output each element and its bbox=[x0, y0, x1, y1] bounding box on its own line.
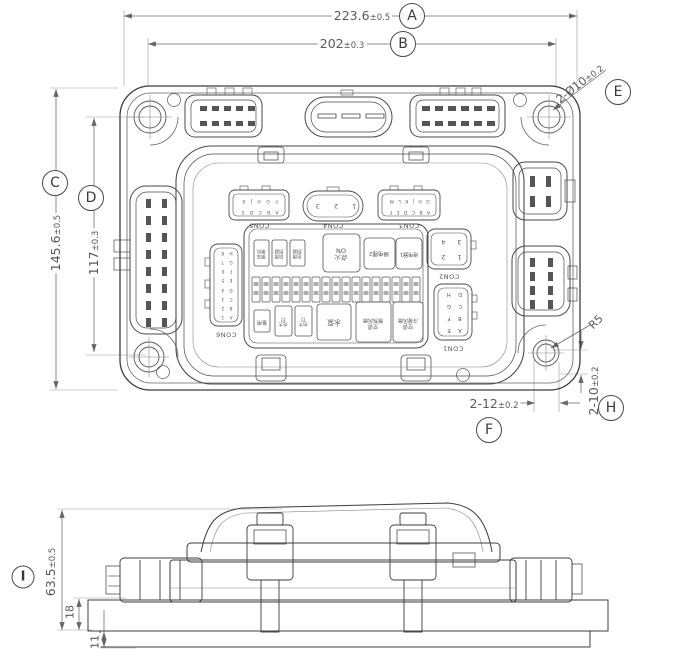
balloon-F: F bbox=[476, 417, 502, 443]
small-relay-4-label: 左大灯 bbox=[279, 316, 288, 326]
top-connector-center bbox=[305, 97, 392, 137]
right-connector-8pin bbox=[512, 246, 577, 316]
con4-pins: 1 2 3 bbox=[309, 197, 357, 215]
dim-D-text: 117±0.3 bbox=[88, 229, 101, 278]
dim-C-text: 145.6±0.5 bbox=[50, 213, 63, 273]
top-connector-left bbox=[185, 95, 262, 137]
small-relay-1-label: 倒车喇叭 bbox=[257, 248, 266, 258]
small-relay-3-label: 后雨刮器 bbox=[293, 248, 302, 258]
con3-pins: A B C D E FG H J K L M bbox=[382, 194, 436, 216]
balloon-D: D bbox=[78, 185, 104, 211]
balloon-I: I bbox=[12, 566, 35, 589]
cover-latches bbox=[256, 147, 431, 381]
dim-18-text: 18 bbox=[65, 603, 76, 621]
side-left-connector bbox=[106, 558, 202, 602]
dim-B-text: 202±0.3 bbox=[318, 38, 367, 51]
con1-pins: A EB F C GD H bbox=[438, 288, 468, 336]
small-relay-5-label: 右大灯 bbox=[299, 316, 308, 326]
con2-pins: 1 23 4 bbox=[431, 234, 467, 264]
relay2-label: 继电器2 bbox=[369, 250, 389, 256]
con1-label: CON1 bbox=[443, 344, 464, 351]
balloon-B: B bbox=[390, 31, 416, 57]
engineering-drawing: 223.6±0.5 A 202±0.3 B C 145.6±0.5 D 117±… bbox=[0, 0, 700, 658]
small-relay-2-label: 前雨刮器 bbox=[275, 248, 284, 258]
dim-I-text: 63.5±0.5 bbox=[45, 546, 58, 598]
dim-F-text: 2-12±0.2 bbox=[467, 398, 520, 411]
side-clips bbox=[247, 513, 436, 632]
con3-label: CON3 bbox=[399, 221, 420, 228]
con6-label: CON6 bbox=[216, 330, 237, 337]
edge-tabs bbox=[207, 88, 481, 95]
relay1-label: 继电器1 bbox=[400, 250, 418, 256]
balloon-C: C bbox=[42, 170, 68, 196]
left-connector bbox=[114, 186, 182, 334]
con5-pins: A B C D EF G H J K bbox=[233, 194, 285, 216]
balloon-H: H bbox=[598, 395, 624, 421]
casing-outline bbox=[120, 86, 580, 390]
ac-fan-2-label: 空调冷凝风扇 bbox=[398, 316, 418, 328]
balloon-A: A bbox=[399, 3, 425, 29]
dim-11-text: 11 bbox=[90, 633, 101, 651]
pump-relay-label: 水泵 bbox=[327, 318, 341, 326]
dim-A-text: 223.6±0.5 bbox=[332, 10, 392, 23]
fuse-strip bbox=[252, 277, 420, 302]
side-view bbox=[88, 503, 608, 647]
balloon-E: E bbox=[605, 79, 631, 105]
side-right-connector bbox=[510, 558, 582, 602]
con2-label: CON2 bbox=[439, 272, 460, 279]
ignition-relay-label: 点火ON bbox=[335, 246, 348, 261]
mounting-holes bbox=[134, 101, 565, 372]
con6-pins: A 1B 2 C 3D 4 E 5F 6 G 7H 8 bbox=[214, 248, 238, 322]
ac-fan-1-label: 空调散热风扇 bbox=[363, 316, 383, 328]
con4-label: CON4 bbox=[323, 221, 344, 228]
con5-label: CON5 bbox=[249, 221, 270, 228]
top-connector-right bbox=[410, 95, 505, 137]
spare-label: 备用 bbox=[257, 318, 267, 324]
